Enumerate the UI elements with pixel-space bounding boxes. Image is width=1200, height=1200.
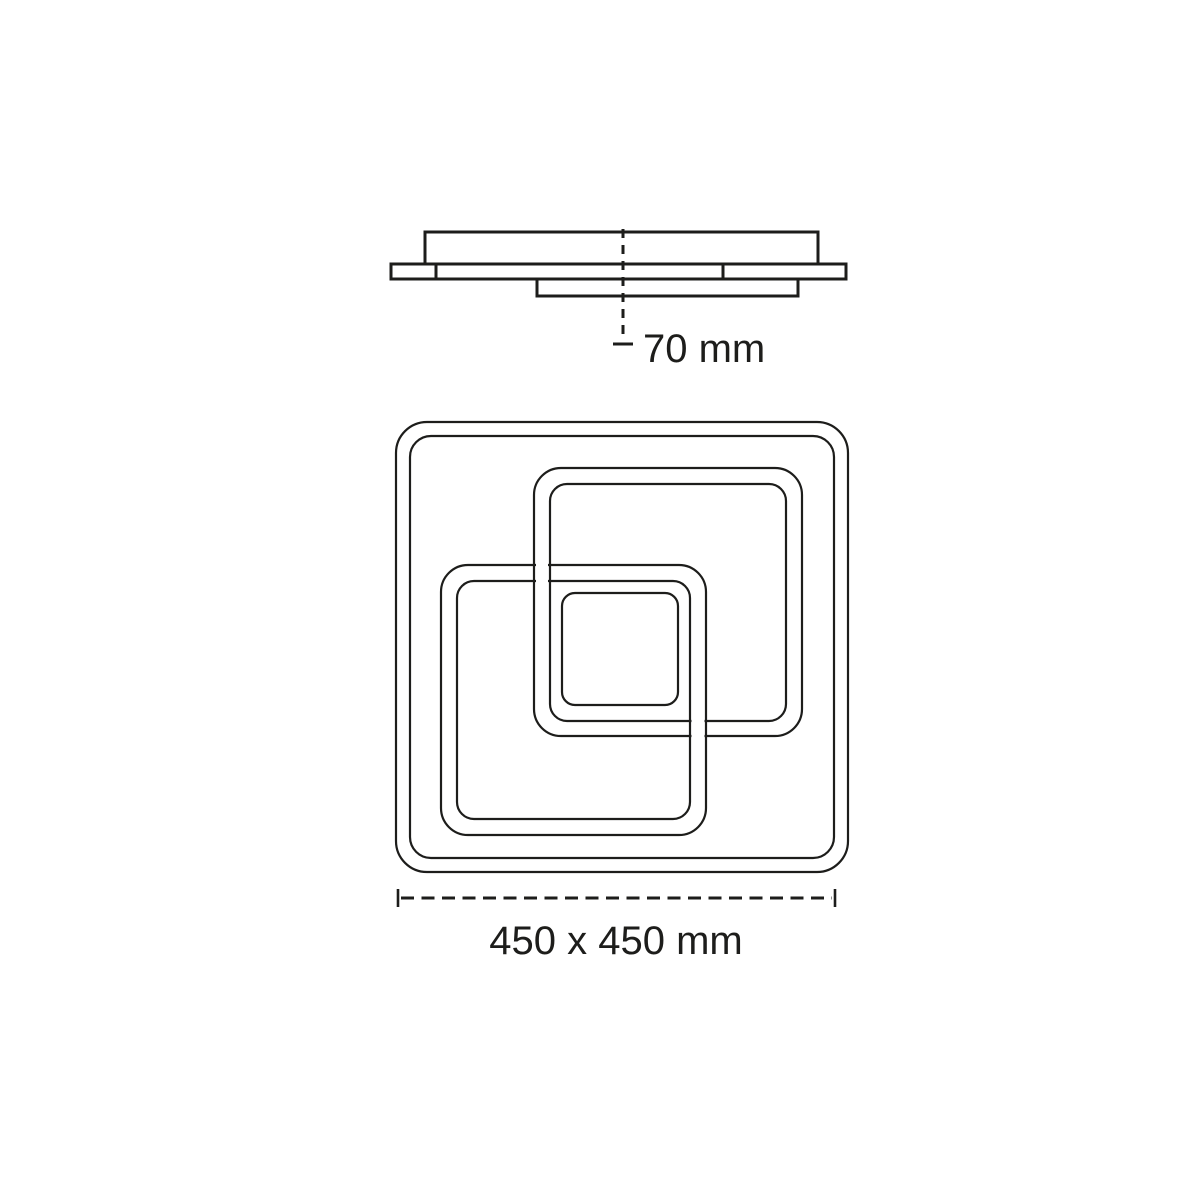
- height-dimension-label: 70 mm: [643, 327, 765, 371]
- interlock-break-top-left: [536, 561, 548, 587]
- width-dimension: 450 x 450 mm: [398, 889, 835, 963]
- drawing-svg: 70 mm 450 x 450 mm: [0, 0, 1200, 1200]
- front-view: [396, 422, 848, 872]
- side-view-base-plate: [391, 264, 846, 279]
- ring-bottom-left-outer-edge: [441, 565, 706, 835]
- center-square-detail: [562, 593, 678, 705]
- frame-inner-edge: [410, 436, 834, 858]
- ring-bottom-left-inner-edge: [457, 581, 690, 819]
- side-view: [391, 232, 846, 296]
- side-view-bottom-plate: [537, 279, 798, 296]
- ring-top-right-outer-edge: [534, 468, 802, 736]
- interlock-break-bottom-right: [692, 716, 705, 741]
- width-dimension-label: 450 x 450 mm: [489, 919, 742, 963]
- height-dimension: 70 mm: [613, 229, 765, 371]
- lamp-dimension-drawing: 70 mm 450 x 450 mm: [0, 0, 1200, 1200]
- ring-top-right-inner-edge: [550, 484, 786, 721]
